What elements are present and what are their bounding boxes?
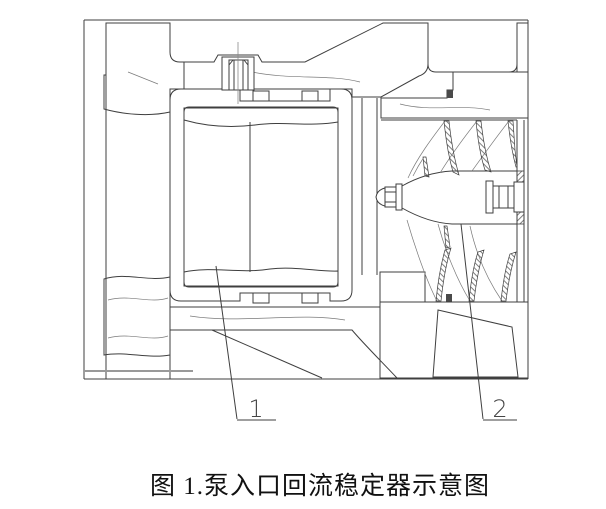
pump-casing-section [104, 23, 528, 379]
casing-right-sliver [517, 23, 528, 72]
nose-bolt [376, 184, 402, 210]
ring-liner-bottom [184, 268, 338, 286]
stabilizer-ring-body [170, 89, 352, 301]
part-label-2: 2 [492, 395, 507, 423]
joint-seal-bottom [446, 294, 452, 302]
clearance-sleeve-lines [362, 98, 377, 275]
annotations: 1 2 [216, 224, 517, 423]
casing-flange-bottom-left [104, 276, 170, 356]
inducer [376, 120, 524, 302]
o-ring-seals [253, 91, 318, 303]
figure-caption: 图 1.泵入口回流稳定器示意图 [150, 472, 490, 500]
part-label-1: 1 [248, 395, 263, 423]
casing-bottom-step [380, 272, 425, 302]
casing-top-band [184, 23, 428, 97]
ring-liner-top [184, 108, 338, 126]
shaft-nut [486, 181, 524, 213]
retaining-bolt [222, 42, 254, 104]
inducer-blades-top [408, 121, 517, 178]
leader-line-1 [216, 266, 276, 420]
casing-flange-top-left [104, 23, 184, 115]
pump-section-drawing: 1 2 图 1.泵入口回流稳定器示意图 [0, 0, 606, 509]
casing-inner-band-top [381, 72, 528, 118]
discharge-channel [433, 310, 518, 377]
inlet-port-notch [428, 23, 517, 72]
engineering-drawing-page: 1 2 图 1.泵入口回流稳定器示意图 [0, 0, 606, 509]
joint-seal-top [447, 90, 453, 98]
stabilizer-ring [170, 42, 377, 303]
